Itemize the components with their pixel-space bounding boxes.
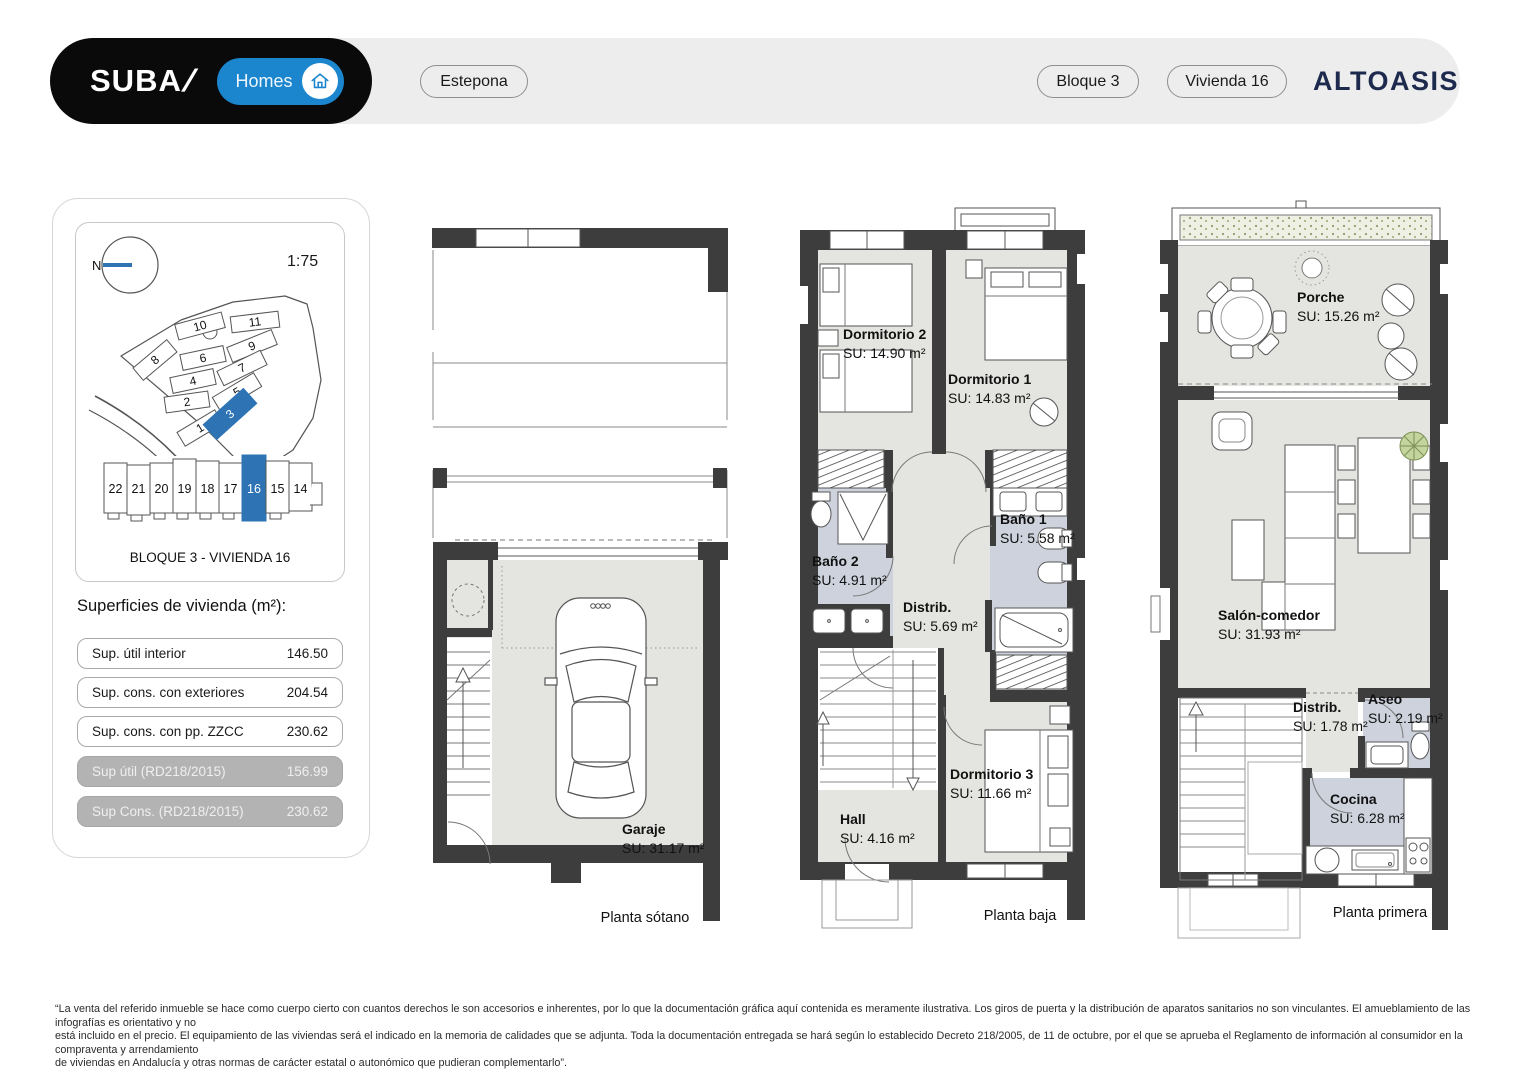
room-label-distrib-baja: Distrib.SU: 5.69 m²	[903, 598, 978, 636]
surface-label: Sup. útil interior	[92, 646, 186, 661]
plan-sheet: SUBA/ Homes Estepona Bloque 3 Vivienda 1…	[0, 0, 1527, 1080]
units-strip-highlighted: 16	[242, 455, 266, 521]
surface-value: 230.62	[287, 804, 328, 819]
plan-caption-baja: Planta baja	[940, 908, 1100, 924]
legal-disclaimer: “La venta del referido inmueble se hace …	[55, 1003, 1505, 1071]
svg-text:21: 21	[132, 482, 146, 496]
svg-text:17: 17	[224, 482, 238, 496]
room-label-bano-2: Baño 2SU: 4.91 m²	[812, 552, 887, 590]
surface-label: Sup. cons. con pp. ZZCC	[92, 724, 244, 739]
svg-text:18: 18	[201, 482, 215, 496]
entrance-steps	[822, 880, 912, 928]
room-label-dormitorio-3: Dormitorio 3SU: 11.66 m²	[950, 765, 1033, 803]
surface-value: 156.99	[287, 764, 328, 779]
svg-text:11: 11	[248, 314, 262, 329]
homes-badge[interactable]: Homes	[217, 58, 344, 105]
room-label-bano-1: Baño 1SU: 5.58 m²	[1000, 510, 1075, 548]
surface-row: Sup. útil interior 146.50	[77, 638, 343, 669]
disclaimer-line: está incluido en el precio. El equipamie…	[55, 1030, 1505, 1057]
altoasis-logo: ALTOASIS	[1313, 66, 1459, 97]
room-label-salon-comedor: Salón-comedorSU: 31.93 m²	[1218, 606, 1320, 644]
surfaces-title: Superficies de vivienda (m²):	[77, 597, 286, 616]
location-badge[interactable]: Estepona	[420, 65, 528, 98]
surface-value: 204.54	[287, 685, 328, 700]
svg-text:16: 16	[247, 482, 261, 496]
patio-outline	[1178, 888, 1300, 938]
suba-logo: SUBA/ Homes	[50, 38, 372, 124]
room-label-aseo: AseoSU: 2.19 m²	[1368, 690, 1443, 728]
salon-plant	[1400, 432, 1428, 460]
svg-text:15: 15	[271, 482, 285, 496]
home-icon	[302, 63, 338, 99]
surface-label: Sup útil (RD218/2015)	[92, 764, 226, 779]
compass-n-label: N	[92, 258, 101, 273]
surface-value: 230.62	[287, 724, 328, 739]
disclaimer-line: de viviendas en Andalucía y otras normas…	[55, 1057, 1505, 1071]
surface-label: Sup. cons. con exteriores	[92, 685, 244, 700]
units-strip: 22 21 20 19 18 17 16 15 14	[98, 453, 324, 529]
surface-row: Sup útil (RD218/2015) 156.99	[77, 756, 343, 787]
room-label-distrib-primera: Distrib.SU: 1.78 m²	[1293, 698, 1368, 736]
unit-badge[interactable]: Vivienda 16	[1167, 65, 1287, 98]
block-badge[interactable]: Bloque 3	[1037, 65, 1139, 98]
surface-label: Sup Cons. (RD218/2015)	[92, 804, 244, 819]
room-label-garaje: Garaje SU: 31.17 m²	[622, 820, 704, 858]
stairs	[1180, 698, 1302, 880]
svg-text:14: 14	[294, 482, 308, 496]
surface-row: Sup Cons. (RD218/2015) 230.62	[77, 796, 343, 827]
homes-label: Homes	[235, 71, 292, 92]
brand-text: SUBA	[90, 63, 182, 99]
car	[545, 598, 657, 818]
plan-caption-sotano: Planta sótano	[560, 910, 730, 926]
surface-value: 146.50	[287, 646, 328, 661]
room-label-dormitorio-1: Dormitorio 1SU: 14.83 m²	[948, 370, 1031, 408]
surface-row: Sup. cons. con exteriores 204.54	[77, 677, 343, 708]
room-label-cocina: CocinaSU: 6.28 m²	[1330, 790, 1405, 828]
disclaimer-line: “La venta del referido inmueble se hace …	[55, 1003, 1505, 1030]
svg-text:22: 22	[109, 482, 123, 496]
siteplan-sketch: 10 11 8 6 9 4 7 2 5 1 3	[85, 288, 335, 456]
room-label-dormitorio-2: Dormitorio 2SU: 14.90 m²	[843, 325, 926, 363]
room-label-hall: HallSU: 4.16 m²	[840, 810, 915, 848]
scale-label: 1:75	[287, 253, 318, 271]
plan-caption-primera: Planta primera	[1300, 905, 1460, 921]
svg-text:19: 19	[178, 482, 192, 496]
strip-caption: BLOQUE 3 - VIVIENDA 16	[85, 550, 335, 565]
room-label-porche: PorcheSU: 15.26 m²	[1297, 288, 1379, 326]
svg-text:20: 20	[155, 482, 169, 496]
surface-row: Sup. cons. con pp. ZZCC 230.62	[77, 716, 343, 747]
